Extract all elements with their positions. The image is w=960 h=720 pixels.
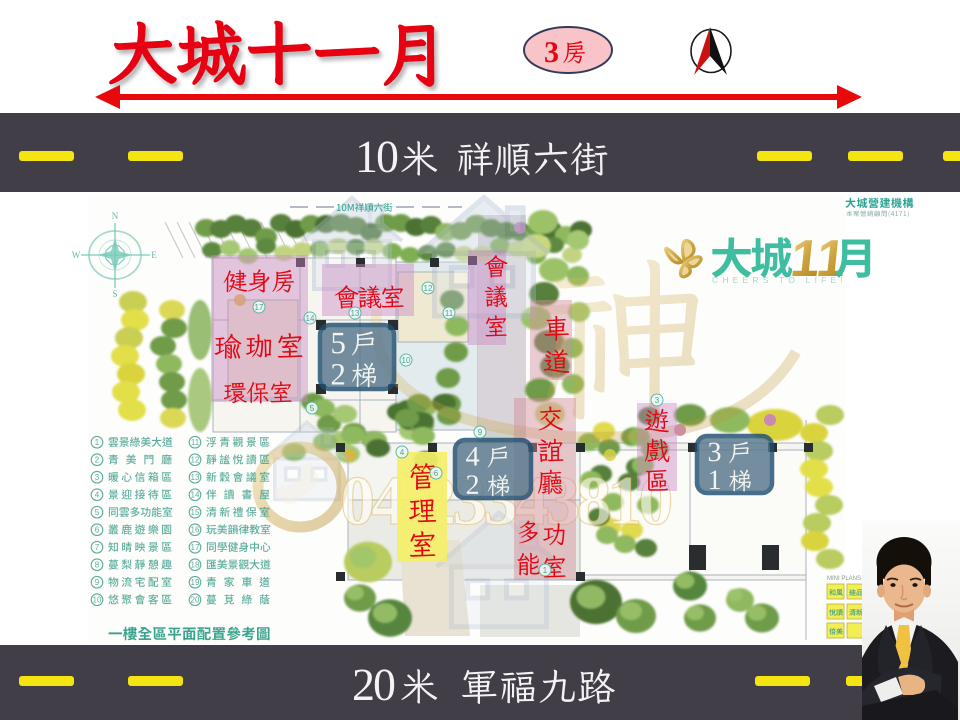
svg-text:10: 10 — [402, 356, 411, 365]
svg-text:E: E — [151, 250, 157, 260]
svg-text:CHEERS TO LIFE!: CHEERS TO LIFE! — [712, 275, 847, 285]
svg-text:13: 13 — [351, 309, 360, 318]
svg-text:4: 4 — [400, 448, 405, 457]
svg-text:9: 9 — [95, 578, 100, 587]
svg-text:5: 5 — [310, 404, 315, 413]
svg-text:17: 17 — [191, 543, 200, 552]
svg-text:2: 2 — [95, 456, 100, 465]
svg-text:11: 11 — [445, 309, 454, 318]
svg-text:W: W — [72, 250, 81, 260]
svg-text:20: 20 — [191, 596, 200, 605]
svg-text:14: 14 — [191, 491, 200, 500]
svg-text:6: 6 — [434, 469, 439, 478]
svg-text:MINI PLANS: MINI PLANS — [827, 576, 861, 582]
svg-text:13: 13 — [191, 473, 200, 482]
svg-text:11: 11 — [191, 438, 200, 447]
svg-text:12: 12 — [191, 456, 200, 465]
svg-text:N: N — [112, 211, 119, 221]
svg-text:9: 9 — [478, 428, 483, 437]
svg-text:17: 17 — [255, 303, 264, 312]
svg-text:1: 1 — [95, 438, 100, 447]
svg-text:19: 19 — [191, 578, 200, 587]
svg-text:12: 12 — [424, 284, 433, 293]
svg-text:4: 4 — [95, 491, 100, 500]
svg-text:18: 18 — [191, 561, 200, 570]
svg-text:10: 10 — [93, 596, 102, 605]
svg-text:5: 5 — [95, 508, 100, 517]
svg-text:1: 1 — [543, 566, 548, 575]
svg-text:15: 15 — [191, 508, 200, 517]
svg-text:8: 8 — [95, 561, 100, 570]
svg-text:14: 14 — [306, 314, 315, 323]
svg-text:3: 3 — [95, 473, 100, 482]
svg-text:6: 6 — [95, 526, 100, 535]
svg-text:3: 3 — [655, 396, 660, 405]
svg-text:S: S — [112, 289, 117, 299]
svg-text:7: 7 — [95, 543, 100, 552]
svg-text:16: 16 — [191, 526, 200, 535]
